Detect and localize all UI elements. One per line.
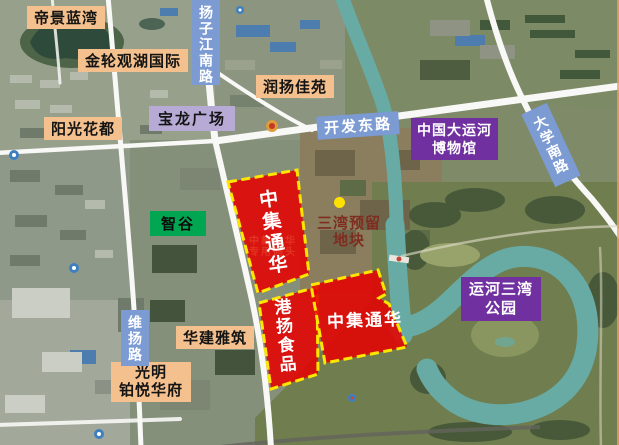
reserve-plot-dot-icon [334, 197, 345, 208]
road-label-weiyang: 维扬路 [121, 310, 149, 366]
annotated-satellite-map: 中集通华 专用码头 中集通华 港扬食品 中集通华 三湾预留 地块 帝景蓝湾 金轮… [0, 0, 619, 445]
place-label-yangguang-huadu: 阳光花都 [44, 117, 122, 140]
place-label-huajian-yazhu: 华建雅筑 [176, 326, 254, 349]
road-label-yangzijiang-south: 扬子江南路 [192, 0, 220, 85]
reserve-plot-label: 三湾预留 地块 [315, 215, 383, 249]
place-label-runyang-jiayuan: 润扬佳苑 [256, 75, 334, 98]
place-label-yunhe-sanwan-park: 运河三湾 公园 [461, 277, 541, 321]
place-label-canal-museum: 中国大运河 博物馆 [411, 118, 498, 160]
place-label-guangming-boyue: 光明 铂悦华府 [111, 362, 191, 402]
place-label-zhigu: 智谷 [150, 211, 206, 236]
place-label-jinlun-guanhu: 金轮观湖国际 [78, 49, 188, 72]
place-label-baolong-plaza: 宝龙广场 [149, 106, 235, 131]
site-label-zhongji-east: 中集通华 [327, 305, 404, 333]
place-label-dijing-lanwan: 帝景蓝湾 [27, 6, 105, 29]
